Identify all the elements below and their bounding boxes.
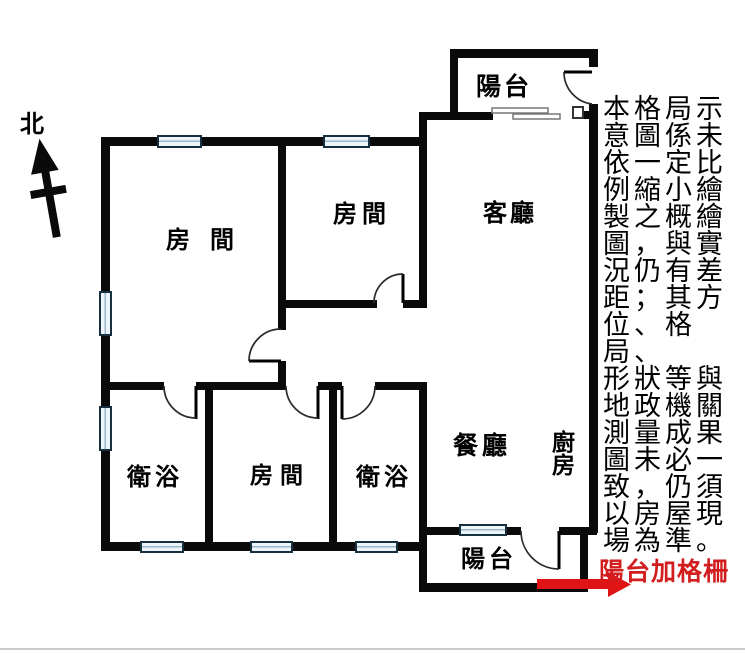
north-arrow-icon — [21, 136, 74, 241]
north-label: 北 — [20, 104, 44, 139]
disclaimer-text: 本格局示 意圖係未 依一定比 例縮小繪 製之概繪 圖，與實 況仍有差 距；其方 … — [603, 96, 745, 555]
balcony-grille-note: 陽台加格柵 — [599, 552, 729, 588]
door-symbol-bath1 — [164, 386, 196, 419]
floor-plan: 北 房間 房間 客廳 衛浴 房間 衛浴 餐廳 廚房 陽台 陽台 本格局示 意圖係… — [0, 0, 745, 654]
page-divider-line — [0, 648, 745, 650]
door-symbol-bath2 — [342, 386, 375, 419]
room-label-living: 客廳 — [483, 200, 537, 225]
door-symbol-room2 — [374, 274, 403, 303]
room-label-bath2: 衛浴 — [356, 464, 412, 489]
door-symbol-room3 — [286, 386, 318, 419]
door-symbol-room1 — [249, 329, 281, 361]
room-label-balcony-bottom: 陽台 — [461, 546, 517, 571]
sliding-door-symbol — [492, 107, 583, 119]
door-symbol-balcony — [521, 531, 559, 569]
room-label-bath1: 衛浴 — [127, 464, 183, 489]
room-label-bedroom1: 房間 — [166, 227, 254, 252]
room-label-dining: 餐廳 — [453, 433, 511, 459]
room-label-kitchen: 廚房 — [552, 431, 578, 477]
room-label-bedroom2: 房間 — [333, 201, 391, 226]
door-symbol-entrance — [564, 72, 592, 104]
room-label-balcony-top: 陽台 — [476, 74, 532, 100]
room-label-bedroom3: 房間 — [250, 464, 310, 488]
